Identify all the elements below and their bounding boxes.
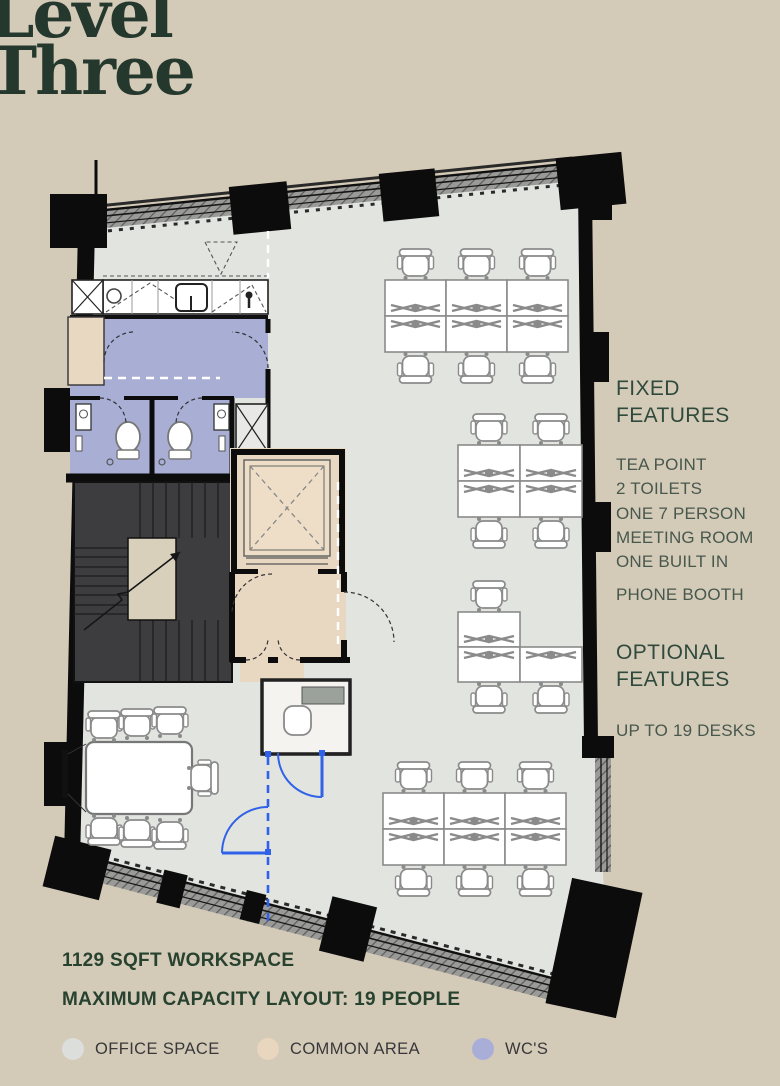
fixed-feature-line: ONE 7 PERSON xyxy=(616,502,774,526)
column-west-2 xyxy=(44,742,74,806)
desk-bank-south xyxy=(383,762,566,896)
optional-features-section: OPTIONAL FEATURES UP TO 19 DESKS xyxy=(616,640,774,743)
elevator-core xyxy=(230,448,346,574)
monitor-icon xyxy=(391,321,440,327)
monitor-icon xyxy=(391,305,440,311)
legend-swatch-icon xyxy=(257,1038,279,1060)
monitor-icon xyxy=(464,470,514,476)
riser-common-west xyxy=(68,317,104,385)
stair-core xyxy=(74,482,232,682)
riser-box-west xyxy=(72,280,103,314)
stair-landing xyxy=(128,538,176,620)
column-west-1 xyxy=(44,388,74,452)
monitor-icon xyxy=(450,834,499,840)
legend-swatch-icon xyxy=(472,1038,494,1060)
pier-east-1 xyxy=(590,332,609,382)
monitor-icon xyxy=(389,834,438,840)
monitor-icon xyxy=(389,818,438,824)
monitor-icon xyxy=(526,486,576,492)
monitor-icon xyxy=(513,305,562,311)
monitor-icon xyxy=(452,321,501,327)
fixed-feature-line: PHONE BOOTH xyxy=(616,583,774,607)
monitor-icon xyxy=(526,470,576,476)
column-north-2 xyxy=(379,168,439,221)
booth-chair xyxy=(284,706,311,735)
legend-item: OFFICE SPACE xyxy=(62,1038,220,1060)
monitor-icon xyxy=(513,321,562,327)
column-northwest xyxy=(50,194,107,248)
riser-box-east xyxy=(236,404,268,452)
optional-features-heading: OPTIONAL FEATURES xyxy=(616,640,774,693)
legend-swatch-icon xyxy=(62,1038,84,1060)
booth-desk xyxy=(302,687,344,704)
column-north-1 xyxy=(229,181,291,235)
legend-label: WC'S xyxy=(505,1040,548,1059)
fixed-features-list: TEA POINT2 TOILETSONE 7 PERSONMEETING RO… xyxy=(616,453,774,607)
fixed-feature-line: MEETING ROOM xyxy=(616,526,774,550)
phone-booth xyxy=(262,680,350,754)
legend: OFFICE SPACECOMMON AREAWC'S xyxy=(0,1038,780,1072)
capacity-stat: MAXIMUM CAPACITY LAYOUT: 19 PEOPLE xyxy=(62,989,460,1011)
stats-block: 1129 SQFT WORKSPACE MAXIMUM CAPACITY LAY… xyxy=(62,950,460,1011)
optional-features-list: UP TO 19 DESKS xyxy=(616,719,774,743)
monitor-icon xyxy=(464,652,514,658)
desk-bank-north xyxy=(385,249,568,383)
wall-east-jog xyxy=(582,736,614,758)
sqft-stat: 1129 SQFT WORKSPACE xyxy=(62,950,460,972)
brochure-page: { "page": { "background": "#d4cab8" }, "… xyxy=(0,0,780,1086)
tv-screen xyxy=(62,750,68,798)
fixed-feature-line: 2 TOILETS xyxy=(616,477,774,501)
monitor-icon xyxy=(511,818,560,824)
meeting-table xyxy=(86,742,192,814)
fixed-feature-line: TEA POINT xyxy=(616,453,774,477)
page-title: Level Three xyxy=(0,0,194,100)
pier-east-2 xyxy=(592,502,611,552)
monitor-icon xyxy=(450,818,499,824)
optional-feature-line: UP TO 19 DESKS xyxy=(616,719,774,743)
monitor-icon xyxy=(464,486,514,492)
monitor-icon xyxy=(526,652,576,658)
legend-item: WC'S xyxy=(472,1038,548,1060)
fixed-features-section: FIXED FEATURES TEA POINT2 TOILETSONE 7 P… xyxy=(616,376,774,607)
window-band-east xyxy=(595,756,611,872)
legend-label: COMMON AREA xyxy=(290,1040,420,1059)
monitor-icon xyxy=(452,305,501,311)
monitor-icon xyxy=(511,834,560,840)
title-line-2: Three xyxy=(0,43,194,100)
legend-item: COMMON AREA xyxy=(257,1038,420,1060)
monitor-icon xyxy=(464,636,514,642)
legend-label: OFFICE SPACE xyxy=(95,1040,220,1059)
fixed-features-heading: FIXED FEATURES xyxy=(616,376,774,429)
fixed-feature-line: ONE BUILT IN xyxy=(616,550,774,574)
